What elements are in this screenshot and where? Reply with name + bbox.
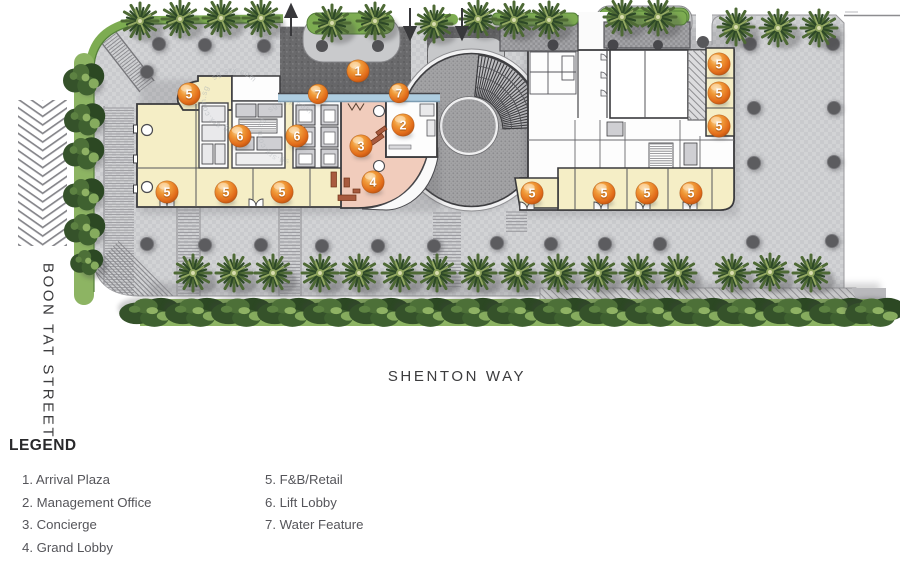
svg-text:4: 4	[370, 175, 377, 189]
svg-text:6: 6	[294, 129, 301, 143]
svg-text:5: 5	[279, 185, 286, 199]
svg-text:6. Lift Lobby: 6. Lift Lobby	[265, 495, 337, 510]
svg-text:5. F&B/Retail: 5. F&B/Retail	[265, 472, 343, 487]
svg-text:5: 5	[644, 186, 651, 200]
svg-text:5: 5	[186, 87, 193, 101]
svg-text:5: 5	[716, 57, 723, 71]
svg-text:2: 2	[400, 118, 407, 132]
svg-text:5: 5	[164, 185, 171, 199]
svg-text:BOON TAT STREET: BOON TAT STREET	[40, 263, 57, 439]
svg-text:SHENTON WAY: SHENTON WAY	[388, 368, 526, 385]
svg-text:7. Water Feature: 7. Water Feature	[265, 517, 363, 532]
svg-text:1: 1	[355, 64, 362, 78]
svg-text:7: 7	[315, 89, 321, 101]
svg-text:1. Arrival Plaza: 1. Arrival Plaza	[22, 472, 111, 487]
svg-text:5: 5	[223, 185, 230, 199]
svg-text:5: 5	[688, 186, 695, 200]
svg-text:2. Management Office: 2. Management Office	[22, 495, 152, 510]
svg-text:5: 5	[716, 86, 723, 100]
svg-text:6: 6	[237, 129, 244, 143]
svg-text:3. Concierge: 3. Concierge	[22, 517, 97, 532]
svg-text:5: 5	[716, 119, 723, 133]
svg-text:5: 5	[529, 186, 536, 200]
svg-text:5: 5	[601, 186, 608, 200]
svg-text:4. Grand Lobby: 4. Grand Lobby	[22, 540, 113, 555]
svg-text:LEGEND: LEGEND	[9, 437, 77, 454]
svg-text:3: 3	[358, 139, 365, 153]
svg-text:7: 7	[396, 88, 402, 100]
